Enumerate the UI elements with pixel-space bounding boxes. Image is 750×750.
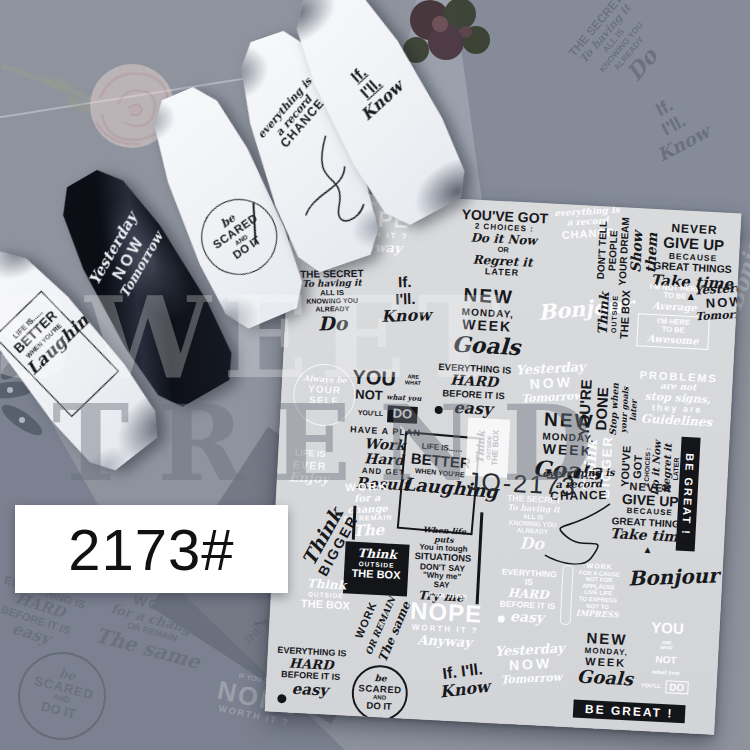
- product-photo: THE SECRET To having it ALL IS KNOWING Y…: [0, 0, 750, 750]
- watermark-trend: TREND: [52, 382, 620, 505]
- decal-work-cause: WORK FOR A CAUSE NOT FOR APPLAUSE LIVE L…: [572, 561, 625, 620]
- decal-line: what you: [651, 668, 679, 675]
- decal-scared-circle: be SCARED AND DO IT: [350, 664, 409, 723]
- dot-mark: [498, 615, 505, 622]
- decal-line: Tomorrow: [695, 309, 741, 324]
- decal-everything-white: EVERYTHING IS HARD BEFORE IT IS easy: [496, 567, 561, 627]
- decal-line: DO: [665, 680, 689, 694]
- decal-line: Awesome: [636, 332, 709, 350]
- decal-line: THE BOX: [617, 286, 632, 343]
- decal-think-box-white: Think OUTSIDE THE BOX: [296, 577, 356, 612]
- decal-line: BE GREAT !: [585, 702, 674, 721]
- decal-line: DO IT: [353, 700, 405, 713]
- decal-be-great-horizontal: BE GREAT !: [573, 699, 686, 723]
- decal-think-outside-inner: Think OUTSIDE THE BOX: [595, 285, 632, 343]
- decal-think-outside-rotated: Think OUTSIDE THE BOX: [584, 276, 644, 353]
- decal-line: ARE WHAT: [657, 641, 675, 652]
- dot-mark: [277, 694, 286, 703]
- decal-new-monday-3: NEW MONDAY, WEEK Goals: [572, 629, 639, 689]
- decal-line: NOT: [655, 654, 677, 666]
- nail-text-if-know: If. I'll. Know: [325, 43, 417, 133]
- decal-you-are-white: YOU ARE WHAT NOT what you YOU'LL DO: [639, 617, 693, 696]
- decal-yesterday-white-2: Yesterday NOW Tomorrow: [492, 641, 568, 687]
- divider-bar: [476, 512, 484, 604]
- decal-bonjour-black: Bonjour: [628, 565, 707, 590]
- decal-line: YOU: [651, 619, 684, 637]
- decal-line: IMPRESS: [572, 609, 622, 620]
- decal-line: easy: [496, 608, 559, 627]
- product-number-label: 2173#: [15, 505, 288, 593]
- decal-youve-got: YOU'VE GOT 2 CHOICES : Do it Now OR Regr…: [446, 206, 561, 280]
- decal-line: Bonjour: [628, 565, 707, 590]
- decal-nope-white-2: IF YOU THINK NOPE WORTH IT ? Anyway: [399, 590, 492, 651]
- watermark-text: TREND: [52, 382, 620, 505]
- decal-line: Tomorrow: [494, 671, 569, 687]
- product-number-text: 2173#: [68, 516, 234, 583]
- decal-line: THE BOX: [296, 597, 355, 612]
- decal-yesterday-edge: Yesterday NOW Tomorrow: [694, 281, 742, 324]
- decal-line: YOU'LL: [641, 682, 661, 689]
- decal-everything-black-2: EVERYTHING IS HARD BEFORE IT IS easy: [271, 646, 350, 700]
- decal-line: Do: [499, 533, 564, 554]
- decal-line: Goals: [572, 667, 637, 690]
